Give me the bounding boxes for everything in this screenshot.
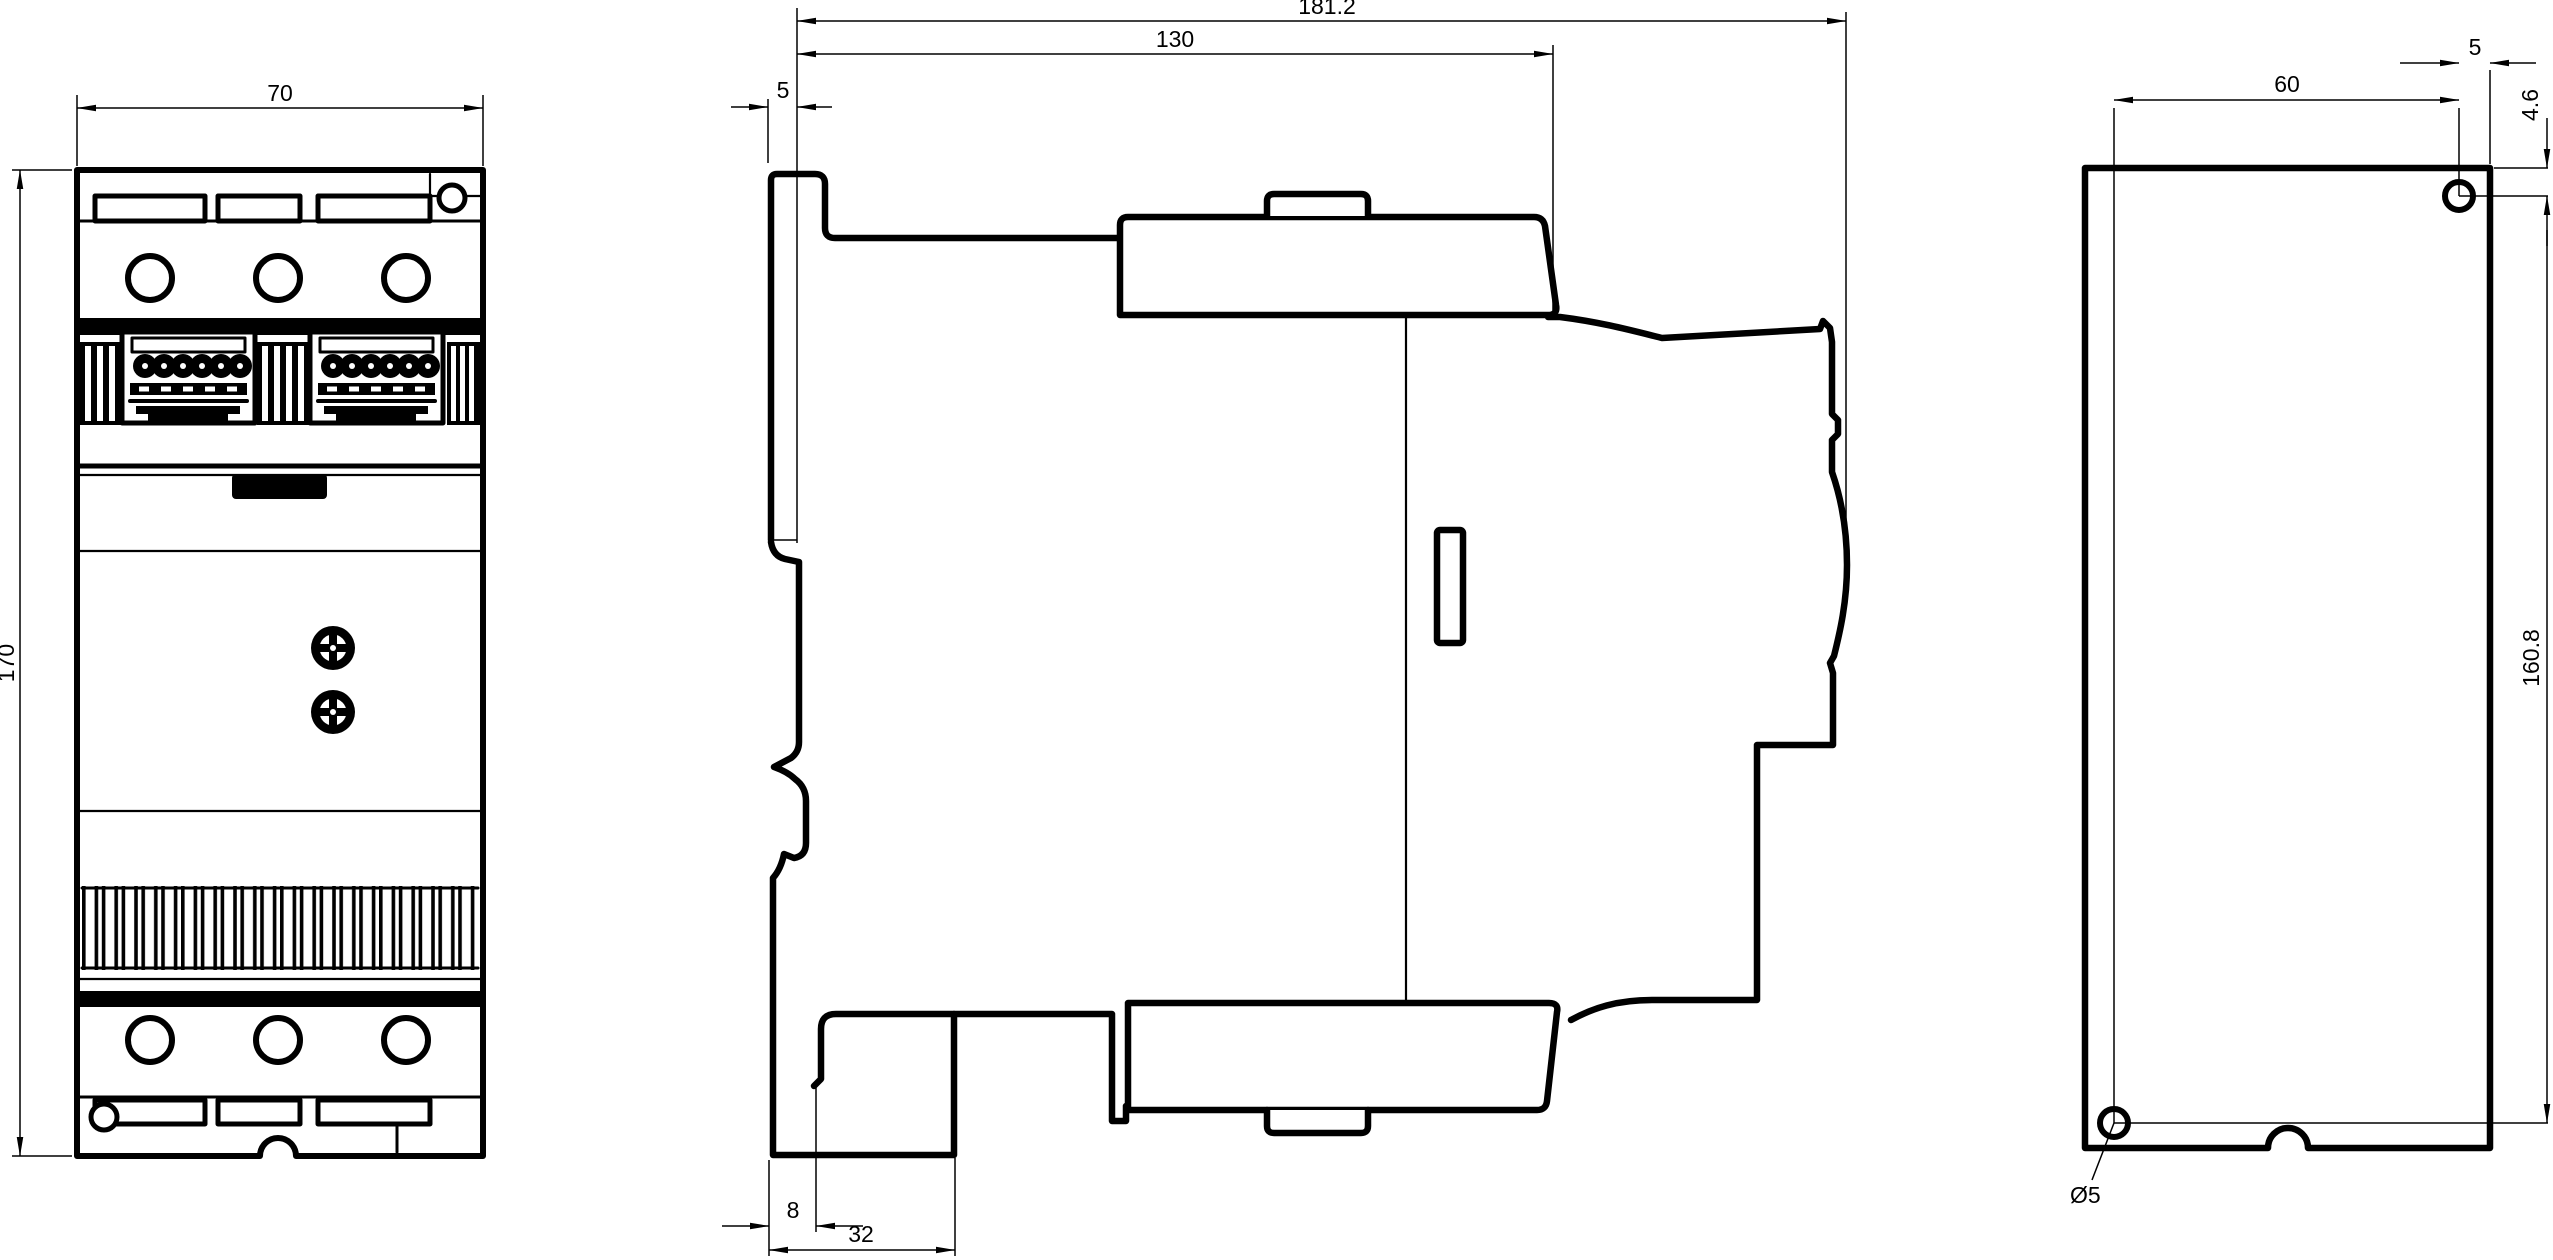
- din-support-arm: [954, 1014, 1126, 1121]
- busbar-band-bottom: [77, 991, 483, 1007]
- side-slot: [1437, 530, 1463, 643]
- dim-hole-spacing-v: 160.8: [2518, 629, 2544, 687]
- dim-foot-depth: 32: [848, 1221, 874, 1247]
- bottom-terminal-tabs: [95, 1100, 430, 1124]
- terminal-cover-bottom: [1128, 1003, 1557, 1110]
- front-outline: [77, 170, 483, 1156]
- terminal-block-left: [122, 332, 255, 423]
- dim-cover-depth: 130: [1156, 26, 1194, 52]
- dim-hole-top-offset: 4.6: [2517, 89, 2543, 121]
- rear-panel-outline: [2085, 168, 2490, 1148]
- top-right-hole: [439, 185, 465, 211]
- cover-tab-top: [1267, 194, 1368, 216]
- front-view: 70 170: [0, 80, 483, 1156]
- cover-tab-bottom: [1267, 1110, 1368, 1133]
- terminal-row: [80, 332, 480, 425]
- din-plate-rail-edge: [771, 542, 954, 1155]
- device-label: [232, 474, 327, 499]
- top-terminal-tabs: [95, 196, 430, 221]
- terminal-block-right: [310, 332, 443, 423]
- vent-slats-right: [447, 342, 480, 425]
- adjustment-screw-top: [311, 626, 355, 670]
- rear-view: 60 5 4.6 160.8 Ø5: [2070, 34, 2548, 1208]
- dim-foot-step: 8: [787, 1197, 800, 1223]
- drawing-canvas: 70 170 181.2: [0, 0, 2553, 1260]
- vent-grille: [82, 886, 478, 970]
- vent-slats-left: [80, 342, 122, 425]
- adjustment-screw-bottom: [311, 690, 355, 734]
- heatsink-profile: [1548, 317, 1847, 1020]
- din-plate-top: [771, 174, 1120, 540]
- dim-hole-spacing-h: 60: [2274, 71, 2300, 97]
- bottom-left-hole: [91, 1104, 117, 1130]
- dim-hole-edge-offset: 5: [2469, 34, 2482, 60]
- dim-hole-diameter: Ø5: [2070, 1182, 2101, 1208]
- terminal-cover-top: [1120, 217, 1556, 315]
- side-view: 181.2 130 5 8 32: [722, 0, 1847, 1256]
- dim-front-height: 170: [0, 644, 19, 682]
- vent-slats-middle: [257, 342, 309, 425]
- dim-front-width: 70: [267, 80, 293, 106]
- dimension-drawing-svg: 70 170 181.2: [0, 0, 2553, 1260]
- dim-rail-offset: 5: [777, 77, 790, 103]
- dim-total-depth: 181.2: [1298, 0, 1356, 19]
